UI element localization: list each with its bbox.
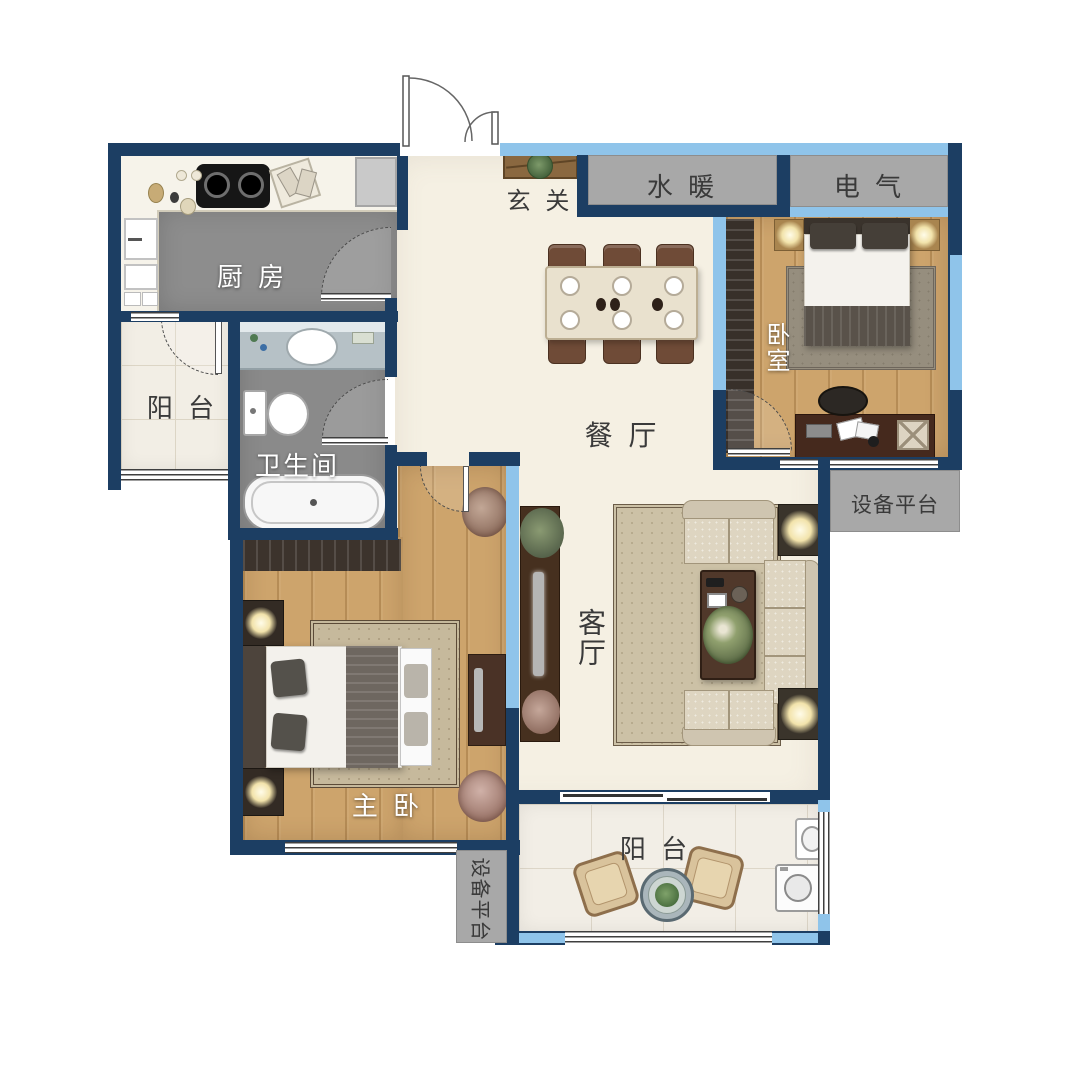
wall-segment xyxy=(775,155,790,212)
wall-segment xyxy=(230,528,243,855)
lamp-icon xyxy=(245,776,277,808)
plate xyxy=(612,310,632,330)
sofa-seam xyxy=(728,518,730,564)
master-wardrobe xyxy=(243,539,401,571)
window xyxy=(950,255,962,390)
plant xyxy=(458,770,508,822)
kitchen-item xyxy=(170,192,179,203)
window xyxy=(818,800,830,812)
window xyxy=(818,914,830,931)
window xyxy=(772,933,818,943)
plumbing-label: 水 暖 xyxy=(625,167,740,204)
toilet-flush xyxy=(250,408,256,414)
wall-segment xyxy=(397,156,408,230)
kitchen-item xyxy=(191,170,202,181)
faucet-icon xyxy=(128,238,142,241)
toilet-bowl xyxy=(267,392,309,436)
pillow xyxy=(862,223,908,249)
desk-chair xyxy=(818,386,868,416)
toiletry xyxy=(260,344,267,351)
stove-burner xyxy=(204,172,230,198)
pillow xyxy=(270,713,307,752)
plant xyxy=(522,690,560,734)
plate xyxy=(612,276,632,296)
electrical-label: 电 气 xyxy=(812,167,927,204)
kitchen-door-threshold xyxy=(321,293,391,301)
kitchen-cabinet xyxy=(124,264,158,290)
wall-segment xyxy=(108,468,121,490)
stove-burner xyxy=(238,172,264,198)
sliding-door-panel xyxy=(667,798,767,801)
kitchen-item xyxy=(180,198,196,215)
window xyxy=(818,812,830,914)
desk-lamp xyxy=(897,420,929,450)
floor-plan: 厨 房 阳 台 卫生间 玄 关 水 暖 电 气 卧室 餐 厅 客厅 主 卧 设备… xyxy=(0,0,1080,1080)
sofa-seam xyxy=(764,607,806,609)
toiletry xyxy=(250,334,258,342)
table-centerpiece xyxy=(596,298,606,311)
window xyxy=(780,459,938,468)
plant xyxy=(655,883,679,907)
wall-segment xyxy=(385,316,397,377)
balcony-bottom-label: 阳 台 xyxy=(598,829,713,866)
wall-segment xyxy=(506,804,519,945)
bench-cushion xyxy=(404,712,428,746)
sofa-back xyxy=(682,500,776,520)
window xyxy=(790,207,948,217)
kitchen-item xyxy=(148,183,164,203)
remote-icon xyxy=(706,578,724,587)
wall-segment xyxy=(228,316,240,540)
entry-plant xyxy=(527,153,553,179)
bedroom-door-threshold xyxy=(728,448,790,456)
bathroom-label: 卫生间 xyxy=(238,446,356,483)
lamp-icon xyxy=(781,694,819,734)
window xyxy=(121,469,229,484)
washing-machine-knob xyxy=(780,867,788,871)
tv-icon xyxy=(474,668,483,732)
plate xyxy=(560,276,580,296)
master-door-leaf xyxy=(463,466,469,512)
plant xyxy=(520,508,564,558)
lamp-icon xyxy=(910,221,938,249)
bathtub-drain xyxy=(310,499,317,506)
lamp-icon xyxy=(781,510,819,550)
equipment-right-label: 设备平台 xyxy=(834,489,956,519)
window xyxy=(285,842,457,853)
fridge xyxy=(355,157,397,207)
sliding-door-panel xyxy=(563,794,663,797)
wall-segment xyxy=(577,205,790,217)
toiletry xyxy=(352,332,374,344)
kitchen-cabinet xyxy=(142,292,158,306)
master-label: 主 卧 xyxy=(330,786,445,823)
wall-segment xyxy=(228,528,398,540)
pillow xyxy=(810,223,856,249)
window xyxy=(131,312,179,321)
table-centerpiece xyxy=(610,298,620,311)
entry-label: 玄 关 xyxy=(485,181,595,216)
wall-segment xyxy=(108,143,400,156)
kitchen-cabinet xyxy=(124,292,141,306)
master-bed-blanket xyxy=(346,646,398,768)
lamp-icon xyxy=(776,221,804,249)
bathroom-sink xyxy=(286,328,338,366)
bench-cushion xyxy=(404,664,428,698)
bedroom-label: 卧室 xyxy=(758,308,793,388)
window xyxy=(519,933,565,943)
kitchen-label: 厨 房 xyxy=(195,257,310,294)
tv-icon xyxy=(533,572,544,676)
lamp-icon xyxy=(245,607,277,639)
equipment-left-label: 设备平台 xyxy=(468,850,497,950)
wall-segment xyxy=(469,452,520,466)
living-label: 客厅 xyxy=(570,598,610,678)
flower-bouquet xyxy=(703,606,753,664)
wall-segment xyxy=(818,457,830,804)
bed-blanket xyxy=(804,306,910,346)
plate xyxy=(560,310,580,330)
kitchen-item xyxy=(176,170,187,181)
washing-machine-drum xyxy=(784,874,812,902)
wall-segment xyxy=(395,452,427,466)
table-centerpiece xyxy=(652,298,663,311)
desk-item xyxy=(868,436,879,447)
sofa-right xyxy=(764,560,806,704)
wall-segment xyxy=(385,298,397,316)
wall-window-strip xyxy=(713,217,726,390)
pillow xyxy=(270,658,308,697)
wall-segment xyxy=(506,708,519,790)
balcony-left-label: 阳 台 xyxy=(125,388,240,425)
dining-label: 餐 厅 xyxy=(560,414,685,454)
balcony-left-door-leaf xyxy=(215,318,222,374)
desk-keyboard xyxy=(806,424,832,438)
tray xyxy=(731,586,748,603)
entrance-door xyxy=(395,68,510,163)
plate xyxy=(664,310,684,330)
sofa-seam xyxy=(728,690,730,730)
bathroom-door-threshold xyxy=(322,437,388,445)
window xyxy=(565,931,772,945)
sofa-seam xyxy=(764,655,806,657)
plate xyxy=(664,276,684,296)
wall-window-strip xyxy=(506,466,519,708)
